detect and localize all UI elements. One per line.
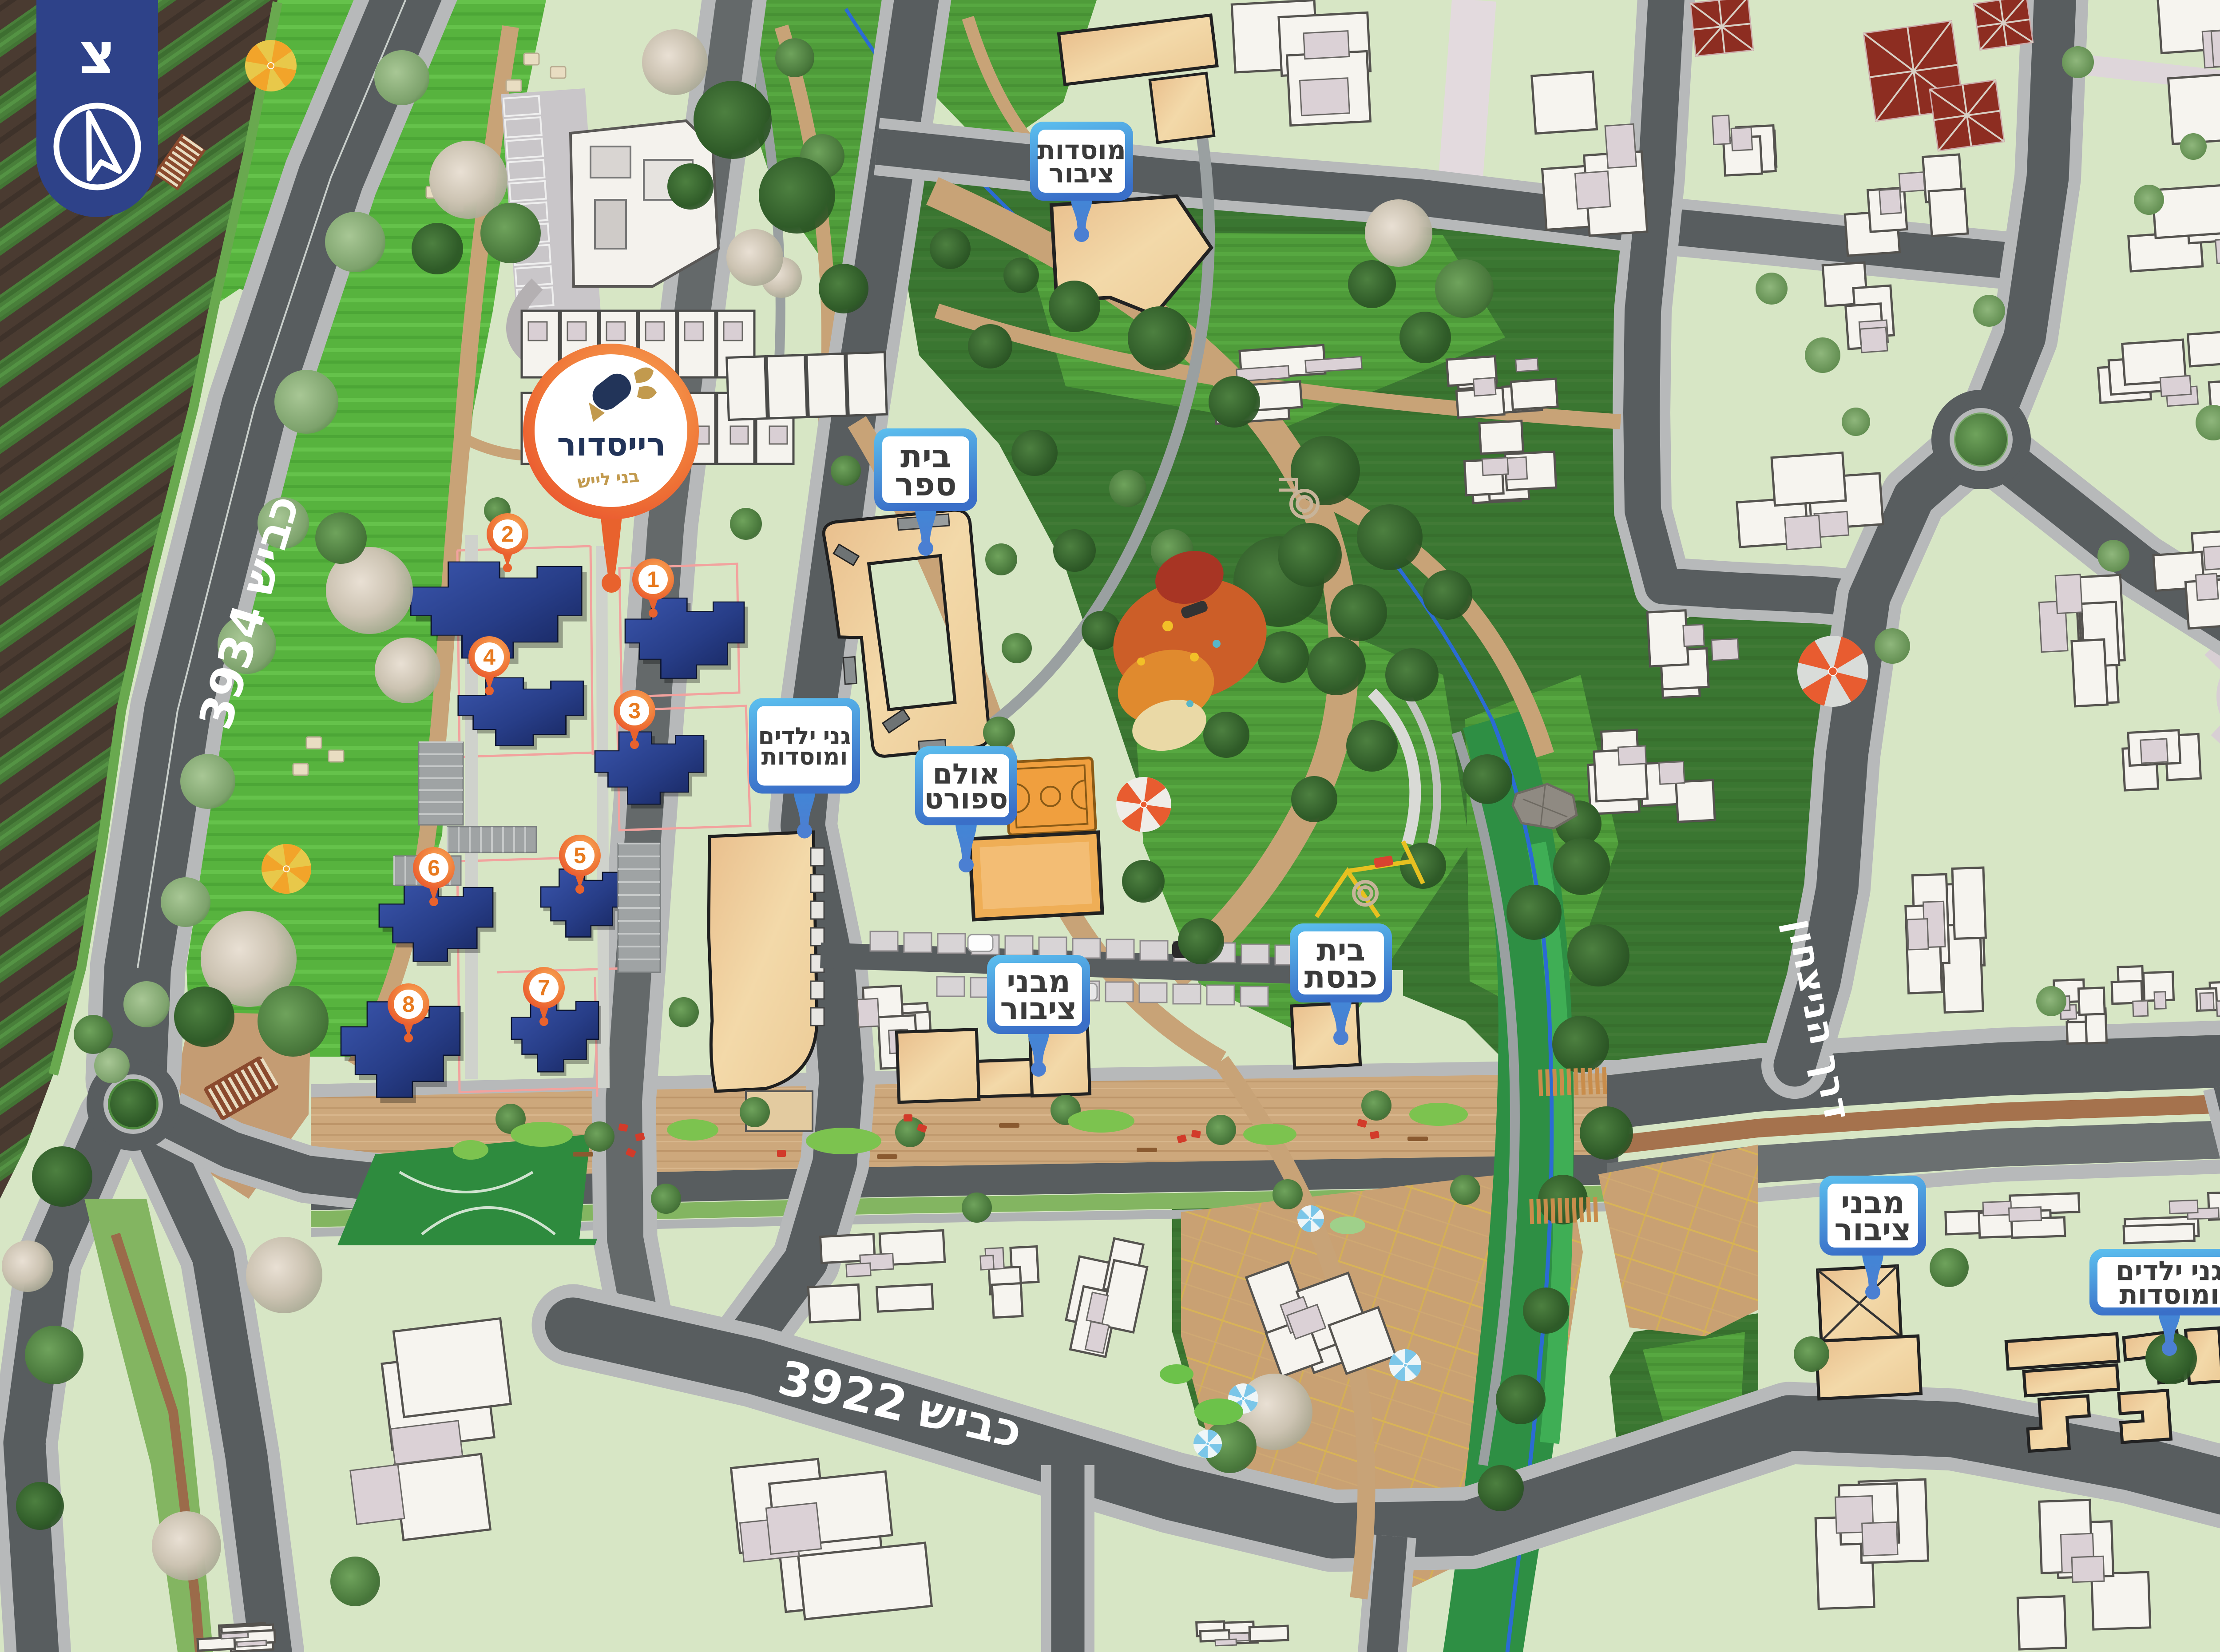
svg-text:4: 4 bbox=[483, 645, 496, 670]
svg-text:1: 1 bbox=[647, 567, 659, 592]
svg-text:3: 3 bbox=[628, 698, 641, 723]
svg-text:6: 6 bbox=[428, 856, 440, 880]
svg-text:5: 5 bbox=[574, 843, 586, 868]
svg-text:7: 7 bbox=[538, 975, 550, 1000]
svg-text:2: 2 bbox=[501, 522, 514, 547]
svg-text:8: 8 bbox=[402, 992, 415, 1017]
